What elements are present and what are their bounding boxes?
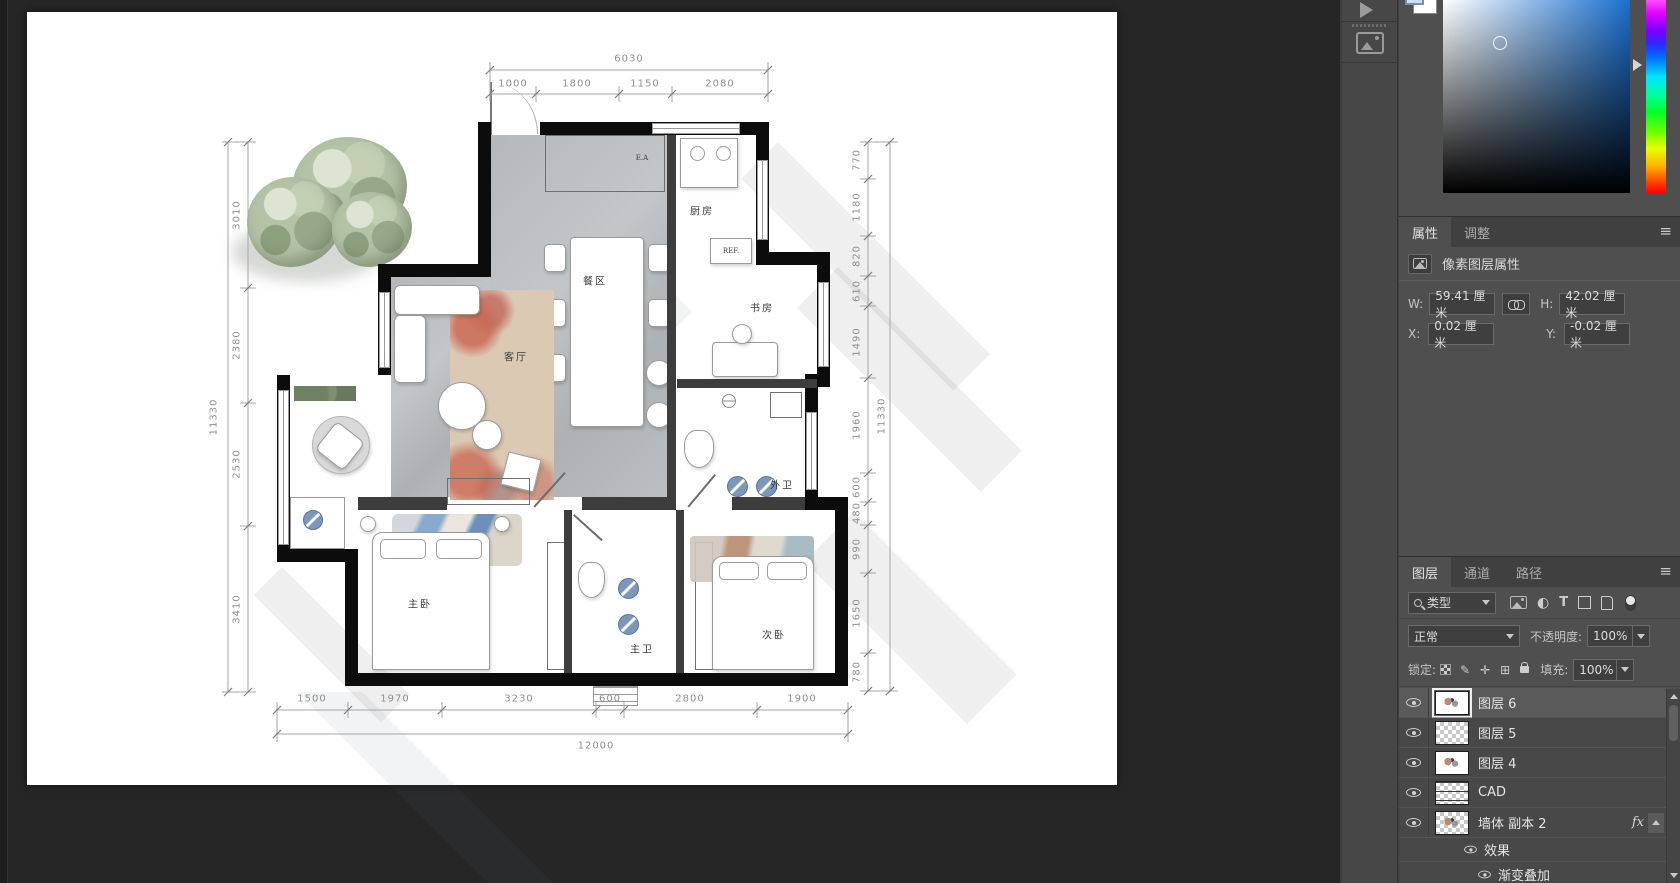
layer-name: 图层 4 bbox=[1478, 753, 1516, 772]
dim-right-seg: 600 bbox=[852, 476, 863, 498]
layer-name: 墙体 副本 2 bbox=[1478, 813, 1547, 832]
dim-bottom-total: 12000 bbox=[578, 741, 615, 752]
collapsed-panel-strip bbox=[1342, 0, 1398, 883]
tab-adjustments-label: 调整 bbox=[1464, 223, 1490, 242]
tab-channels[interactable]: 通道 bbox=[1451, 557, 1503, 587]
layer-thumbnail[interactable] bbox=[1435, 751, 1469, 775]
search-icon bbox=[1414, 599, 1422, 607]
y-field[interactable]: -0.02 厘米 bbox=[1564, 323, 1630, 345]
properties-panel: 属性 调整 ≡ 像素图层属性 W: 59.41 厘米 H: 42.02 厘米 X… bbox=[1399, 216, 1680, 556]
dim-top-seg: 1150 bbox=[630, 79, 659, 90]
dim-top-total: 6030 bbox=[614, 54, 643, 65]
dim-right-seg: 990 bbox=[852, 538, 863, 560]
lock-all-icon[interactable] bbox=[1520, 666, 1529, 673]
x-label: X: bbox=[1408, 327, 1420, 341]
foreground-color-swatch[interactable] bbox=[1405, 0, 1424, 5]
pixel-layer-icon bbox=[1408, 254, 1432, 274]
panel-grip[interactable] bbox=[1352, 24, 1388, 27]
eye-icon[interactable] bbox=[1478, 870, 1491, 878]
x-field[interactable]: 0.02 厘米 bbox=[1428, 323, 1494, 345]
tab-paths-label: 路径 bbox=[1516, 563, 1542, 582]
opacity-field[interactable]: 100% bbox=[1587, 625, 1633, 647]
lock-transparency-icon[interactable] bbox=[1440, 664, 1451, 675]
width-label: W: bbox=[1408, 297, 1423, 311]
dim-top-seg: 1800 bbox=[562, 79, 591, 90]
filter-adjustment-icon[interactable]: ◐ bbox=[1537, 595, 1549, 611]
layer-name: 图层 5 bbox=[1478, 723, 1516, 742]
scrollbar-thumb[interactable] bbox=[1669, 705, 1678, 741]
eye-icon bbox=[1406, 698, 1421, 707]
opacity-label: 不透明度: bbox=[1530, 628, 1582, 645]
dim-right-seg: 820 bbox=[852, 245, 863, 267]
dim-bottom-seg: 600 bbox=[599, 694, 621, 705]
fx-badge[interactable]: fx bbox=[1632, 815, 1644, 830]
filter-type-layer-icon[interactable]: T bbox=[1559, 595, 1568, 610]
dim-right-seg: 1650 bbox=[852, 598, 863, 627]
dim-left-seg: 2530 bbox=[232, 449, 243, 478]
document-page[interactable]: E.A REF. bbox=[27, 12, 1117, 785]
layer-thumbnail[interactable] bbox=[1435, 691, 1469, 715]
height-label: H: bbox=[1540, 297, 1553, 311]
play-panel-icon[interactable] bbox=[1360, 2, 1373, 18]
layer-type-label: 像素图层属性 bbox=[1442, 254, 1520, 273]
filter-toggle[interactable] bbox=[1625, 595, 1636, 611]
layer-thumbnail[interactable] bbox=[1435, 721, 1469, 745]
layer-list: 图层 6 图层 5 图层 4 CAD bbox=[1399, 688, 1666, 883]
y-label: Y: bbox=[1546, 327, 1556, 341]
color-field[interactable] bbox=[1443, 0, 1630, 193]
eye-icon[interactable] bbox=[1464, 846, 1477, 854]
tab-layers-label: 图层 bbox=[1412, 563, 1438, 582]
dim-left-seg: 3010 bbox=[232, 200, 243, 229]
filter-smart-object-icon[interactable] bbox=[1601, 596, 1613, 610]
link-dimensions-icon[interactable] bbox=[1502, 293, 1530, 315]
eye-icon bbox=[1406, 818, 1421, 827]
color-panel bbox=[1399, 0, 1680, 216]
blend-mode-dropdown[interactable]: 正常 bbox=[1408, 625, 1520, 647]
dim-left-total: 11330 bbox=[209, 399, 220, 436]
filter-pixel-icon[interactable] bbox=[1510, 596, 1527, 609]
layer-row[interactable]: CAD bbox=[1399, 778, 1666, 808]
dim-bottom-seg: 1900 bbox=[787, 694, 816, 705]
dim-bottom-seg: 1970 bbox=[380, 694, 409, 705]
layer-thumbnail[interactable] bbox=[1435, 811, 1469, 835]
lock-paint-icon[interactable]: ✎ bbox=[1460, 663, 1470, 677]
effects-label: 效果 bbox=[1484, 840, 1510, 859]
chevron-down-icon bbox=[1482, 600, 1490, 605]
scroll-down-icon[interactable] bbox=[1670, 873, 1678, 878]
tab-properties[interactable]: 属性 bbox=[1399, 217, 1451, 247]
eye-icon bbox=[1406, 788, 1421, 797]
dim-left-seg: 2380 bbox=[232, 330, 243, 359]
tab-paths[interactable]: 路径 bbox=[1503, 557, 1555, 587]
photoshop-window: E.A REF. bbox=[0, 0, 1680, 883]
lock-label: 锁定: bbox=[1408, 661, 1436, 678]
canvas-area[interactable]: E.A REF. bbox=[0, 0, 1340, 883]
dim-right-seg: 1180 bbox=[852, 192, 863, 221]
dim-right-seg: 1960 bbox=[852, 410, 863, 439]
hue-slider-marker[interactable] bbox=[1633, 59, 1642, 71]
toolbar-edge bbox=[0, 0, 8, 883]
dim-right-seg: 610 bbox=[852, 280, 863, 302]
panel-dock: 属性 调整 ≡ 像素图层属性 W: 59.41 厘米 H: 42.02 厘米 X… bbox=[1340, 0, 1680, 883]
eye-icon bbox=[1406, 728, 1421, 737]
layer-row[interactable]: 墙体 副本 2 fx bbox=[1399, 808, 1666, 838]
layer-name: 图层 6 bbox=[1478, 693, 1516, 712]
panel-menu-icon[interactable]: ≡ bbox=[1659, 224, 1672, 239]
dim-top-seg: 1000 bbox=[498, 79, 527, 90]
dim-top-seg: 2080 bbox=[705, 79, 734, 90]
visibility-toggle[interactable] bbox=[1399, 688, 1429, 717]
layer-row[interactable]: 图层 4 bbox=[1399, 748, 1666, 778]
tab-channels-label: 通道 bbox=[1464, 563, 1490, 582]
blend-mode-label: 正常 bbox=[1414, 628, 1438, 645]
tab-adjustments[interactable]: 调整 bbox=[1451, 217, 1503, 247]
visibility-toggle[interactable] bbox=[1399, 748, 1429, 777]
chevron-down-icon bbox=[1506, 634, 1514, 639]
tab-properties-label: 属性 bbox=[1412, 223, 1438, 242]
floor-plan: E.A REF. bbox=[222, 42, 922, 762]
fx-collapse-button[interactable] bbox=[1648, 813, 1664, 833]
color-cursor[interactable] bbox=[1493, 36, 1507, 50]
dim-bottom-seg: 3230 bbox=[504, 694, 533, 705]
fill-field[interactable]: 100% bbox=[1573, 659, 1617, 681]
dim-bottom-seg: 1500 bbox=[297, 694, 326, 705]
gradient-overlay-label: 渐变叠加 bbox=[1498, 865, 1550, 883]
layers-scrollbar[interactable] bbox=[1666, 689, 1680, 883]
layer-row[interactable]: 图层 6 bbox=[1399, 688, 1666, 718]
filter-shape-icon[interactable] bbox=[1578, 596, 1591, 609]
layer-effect-item-row[interactable]: 渐变叠加 bbox=[1399, 862, 1666, 883]
filter-type-label: 类型 bbox=[1427, 594, 1451, 611]
eye-icon bbox=[1406, 758, 1421, 767]
divider bbox=[1342, 62, 1398, 63]
lock-artboard-icon[interactable]: ⊞ bbox=[1500, 663, 1510, 677]
panel-menu-icon[interactable]: ≡ bbox=[1659, 564, 1672, 579]
layer-row[interactable]: 图层 5 bbox=[1399, 718, 1666, 748]
divider bbox=[1342, 21, 1398, 22]
width-field[interactable]: 59.41 厘米 bbox=[1429, 293, 1495, 315]
scroll-up-icon[interactable] bbox=[1670, 694, 1678, 699]
lock-move-icon[interactable]: ✛ bbox=[1480, 663, 1490, 677]
library-panel-icon[interactable] bbox=[1356, 32, 1384, 54]
dim-right-total: 11330 bbox=[877, 398, 888, 435]
visibility-toggle[interactable] bbox=[1399, 778, 1429, 807]
dim-right-seg: 780 bbox=[852, 661, 863, 683]
hue-slider[interactable] bbox=[1646, 0, 1666, 193]
dim-left-seg: 3410 bbox=[232, 594, 243, 623]
filter-type-dropdown[interactable]: 类型 bbox=[1408, 592, 1496, 614]
dim-right-seg: 1490 bbox=[852, 327, 863, 356]
height-field[interactable]: 42.02 厘米 bbox=[1559, 293, 1625, 315]
layers-panel: 图层 通道 路径 ≡ 类型 ◐ T bbox=[1399, 556, 1680, 883]
opacity-dropdown-button[interactable] bbox=[1633, 625, 1650, 647]
layer-effects-row[interactable]: 效果 bbox=[1399, 838, 1666, 862]
fill-dropdown-button[interactable] bbox=[1617, 659, 1634, 681]
layer-name: CAD bbox=[1478, 785, 1506, 800]
layer-thumbnail[interactable] bbox=[1435, 781, 1469, 805]
dim-right-seg: 770 bbox=[852, 149, 863, 171]
dim-right-seg: 480 bbox=[852, 502, 863, 524]
dimension-lines bbox=[222, 42, 922, 762]
visibility-toggle[interactable] bbox=[1399, 808, 1429, 837]
dim-bottom-seg: 2800 bbox=[675, 694, 704, 705]
visibility-toggle[interactable] bbox=[1399, 718, 1429, 747]
tab-layers[interactable]: 图层 bbox=[1399, 557, 1451, 587]
fill-label: 填充: bbox=[1540, 661, 1568, 678]
